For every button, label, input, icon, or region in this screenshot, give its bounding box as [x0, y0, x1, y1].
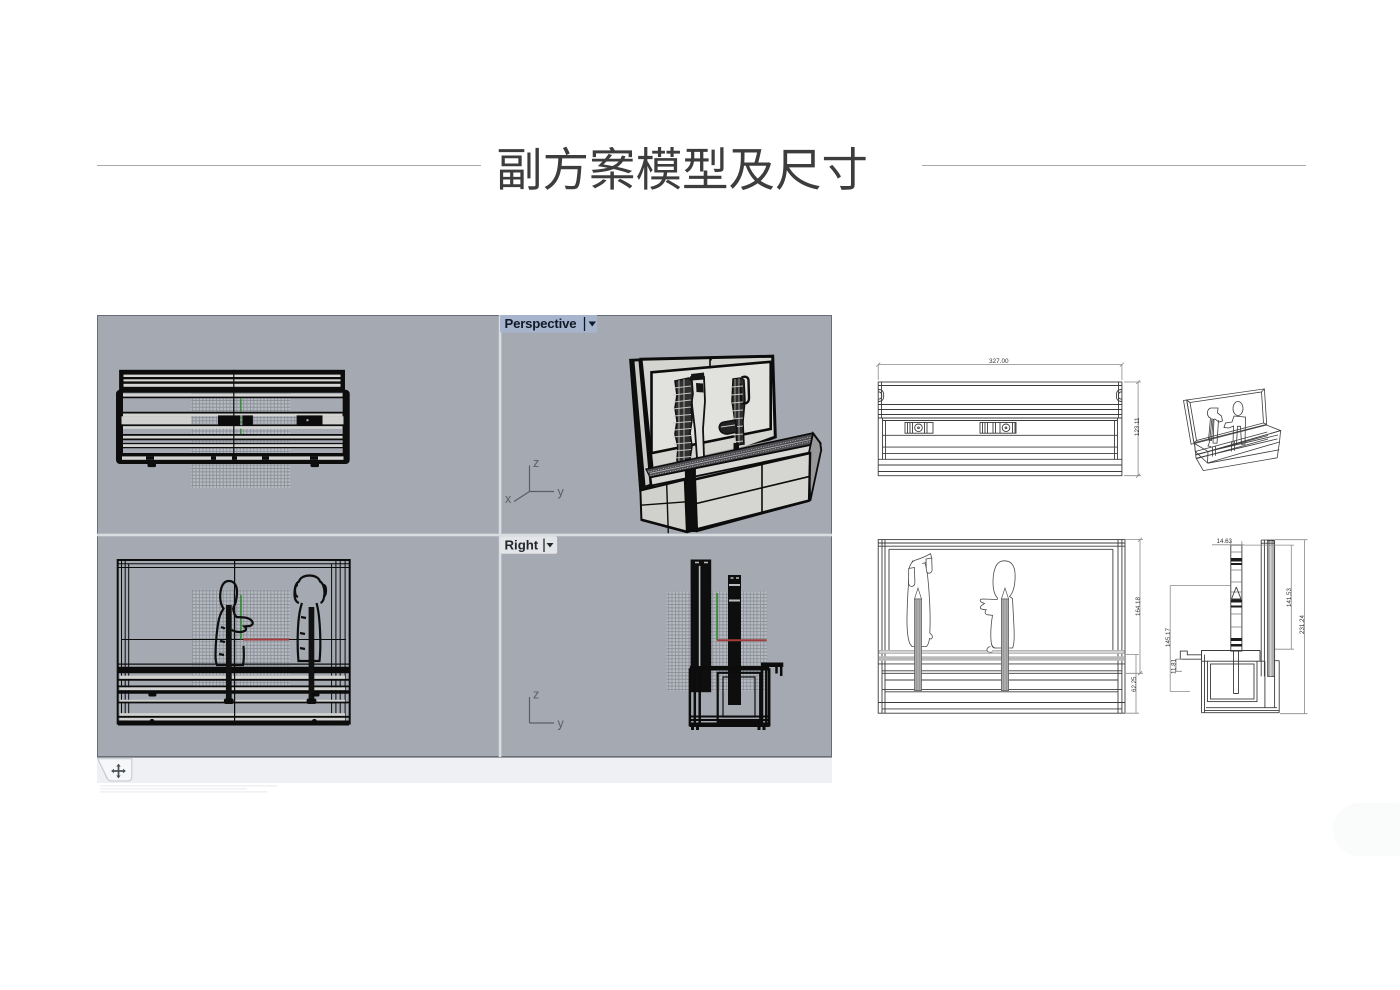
svg-text:164.18: 164.18 [1135, 597, 1142, 616]
svg-text:11.81: 11.81 [1171, 658, 1178, 674]
svg-text:62.25: 62.25 [1131, 676, 1138, 692]
svg-text:z: z [533, 456, 539, 470]
svg-text:Right: Right [505, 538, 539, 553]
svg-text:z: z [533, 688, 539, 702]
svg-text:Perspective: Perspective [505, 316, 577, 331]
svg-text:141.53: 141.53 [1286, 588, 1293, 607]
svg-text:x: x [505, 492, 512, 506]
svg-text:14.63: 14.63 [1217, 538, 1233, 545]
svg-text:231.24: 231.24 [1299, 615, 1306, 634]
svg-text:y: y [558, 485, 565, 499]
svg-text:y: y [558, 717, 565, 731]
svg-text:145.17: 145.17 [1165, 628, 1172, 647]
svg-text:123.11: 123.11 [1134, 417, 1141, 436]
svg-text:327.00: 327.00 [989, 358, 1009, 365]
